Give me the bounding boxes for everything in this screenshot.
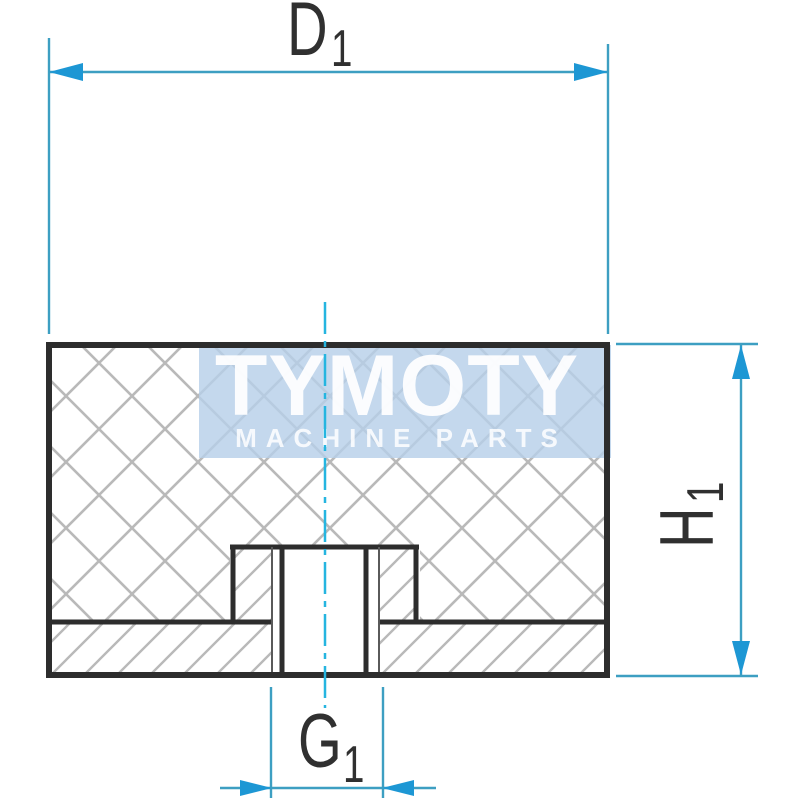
h1-subscript: 1: [676, 482, 734, 503]
d1-arrow-left: [49, 63, 83, 81]
h1-arrow-top: [732, 345, 750, 379]
d1-letter: D: [287, 0, 328, 72]
watermark-subtitle: MACHINE PARTS: [235, 423, 567, 453]
d1-arrow-right: [574, 63, 608, 81]
drawing-canvas: TYMOTY MACHINE PARTS D 1 H 1 G 1: [0, 0, 800, 800]
g1-arrow-left: [240, 780, 272, 796]
g1-letter: G: [298, 699, 342, 784]
h1-letter: H: [645, 507, 730, 548]
buffer-section-drawing: TYMOTY MACHINE PARTS D 1 H 1 G 1: [0, 0, 800, 800]
insert-wall-hatch-right: [379, 548, 415, 621]
dim-label-g1: G 1: [298, 699, 364, 794]
h1-arrow-bottom: [732, 641, 750, 675]
watermark-title: TYMOTY: [215, 338, 579, 434]
dimension-d1: [49, 38, 608, 334]
watermark: TYMOTY MACHINE PARTS: [199, 338, 611, 458]
dim-label-d1: D 1: [287, 0, 352, 77]
dim-label-h1: H 1: [645, 482, 735, 548]
g1-arrow-right: [382, 780, 414, 796]
g1-subscript: 1: [343, 735, 364, 793]
insert-wall-hatch-left: [234, 548, 272, 621]
d1-subscript: 1: [331, 19, 352, 77]
